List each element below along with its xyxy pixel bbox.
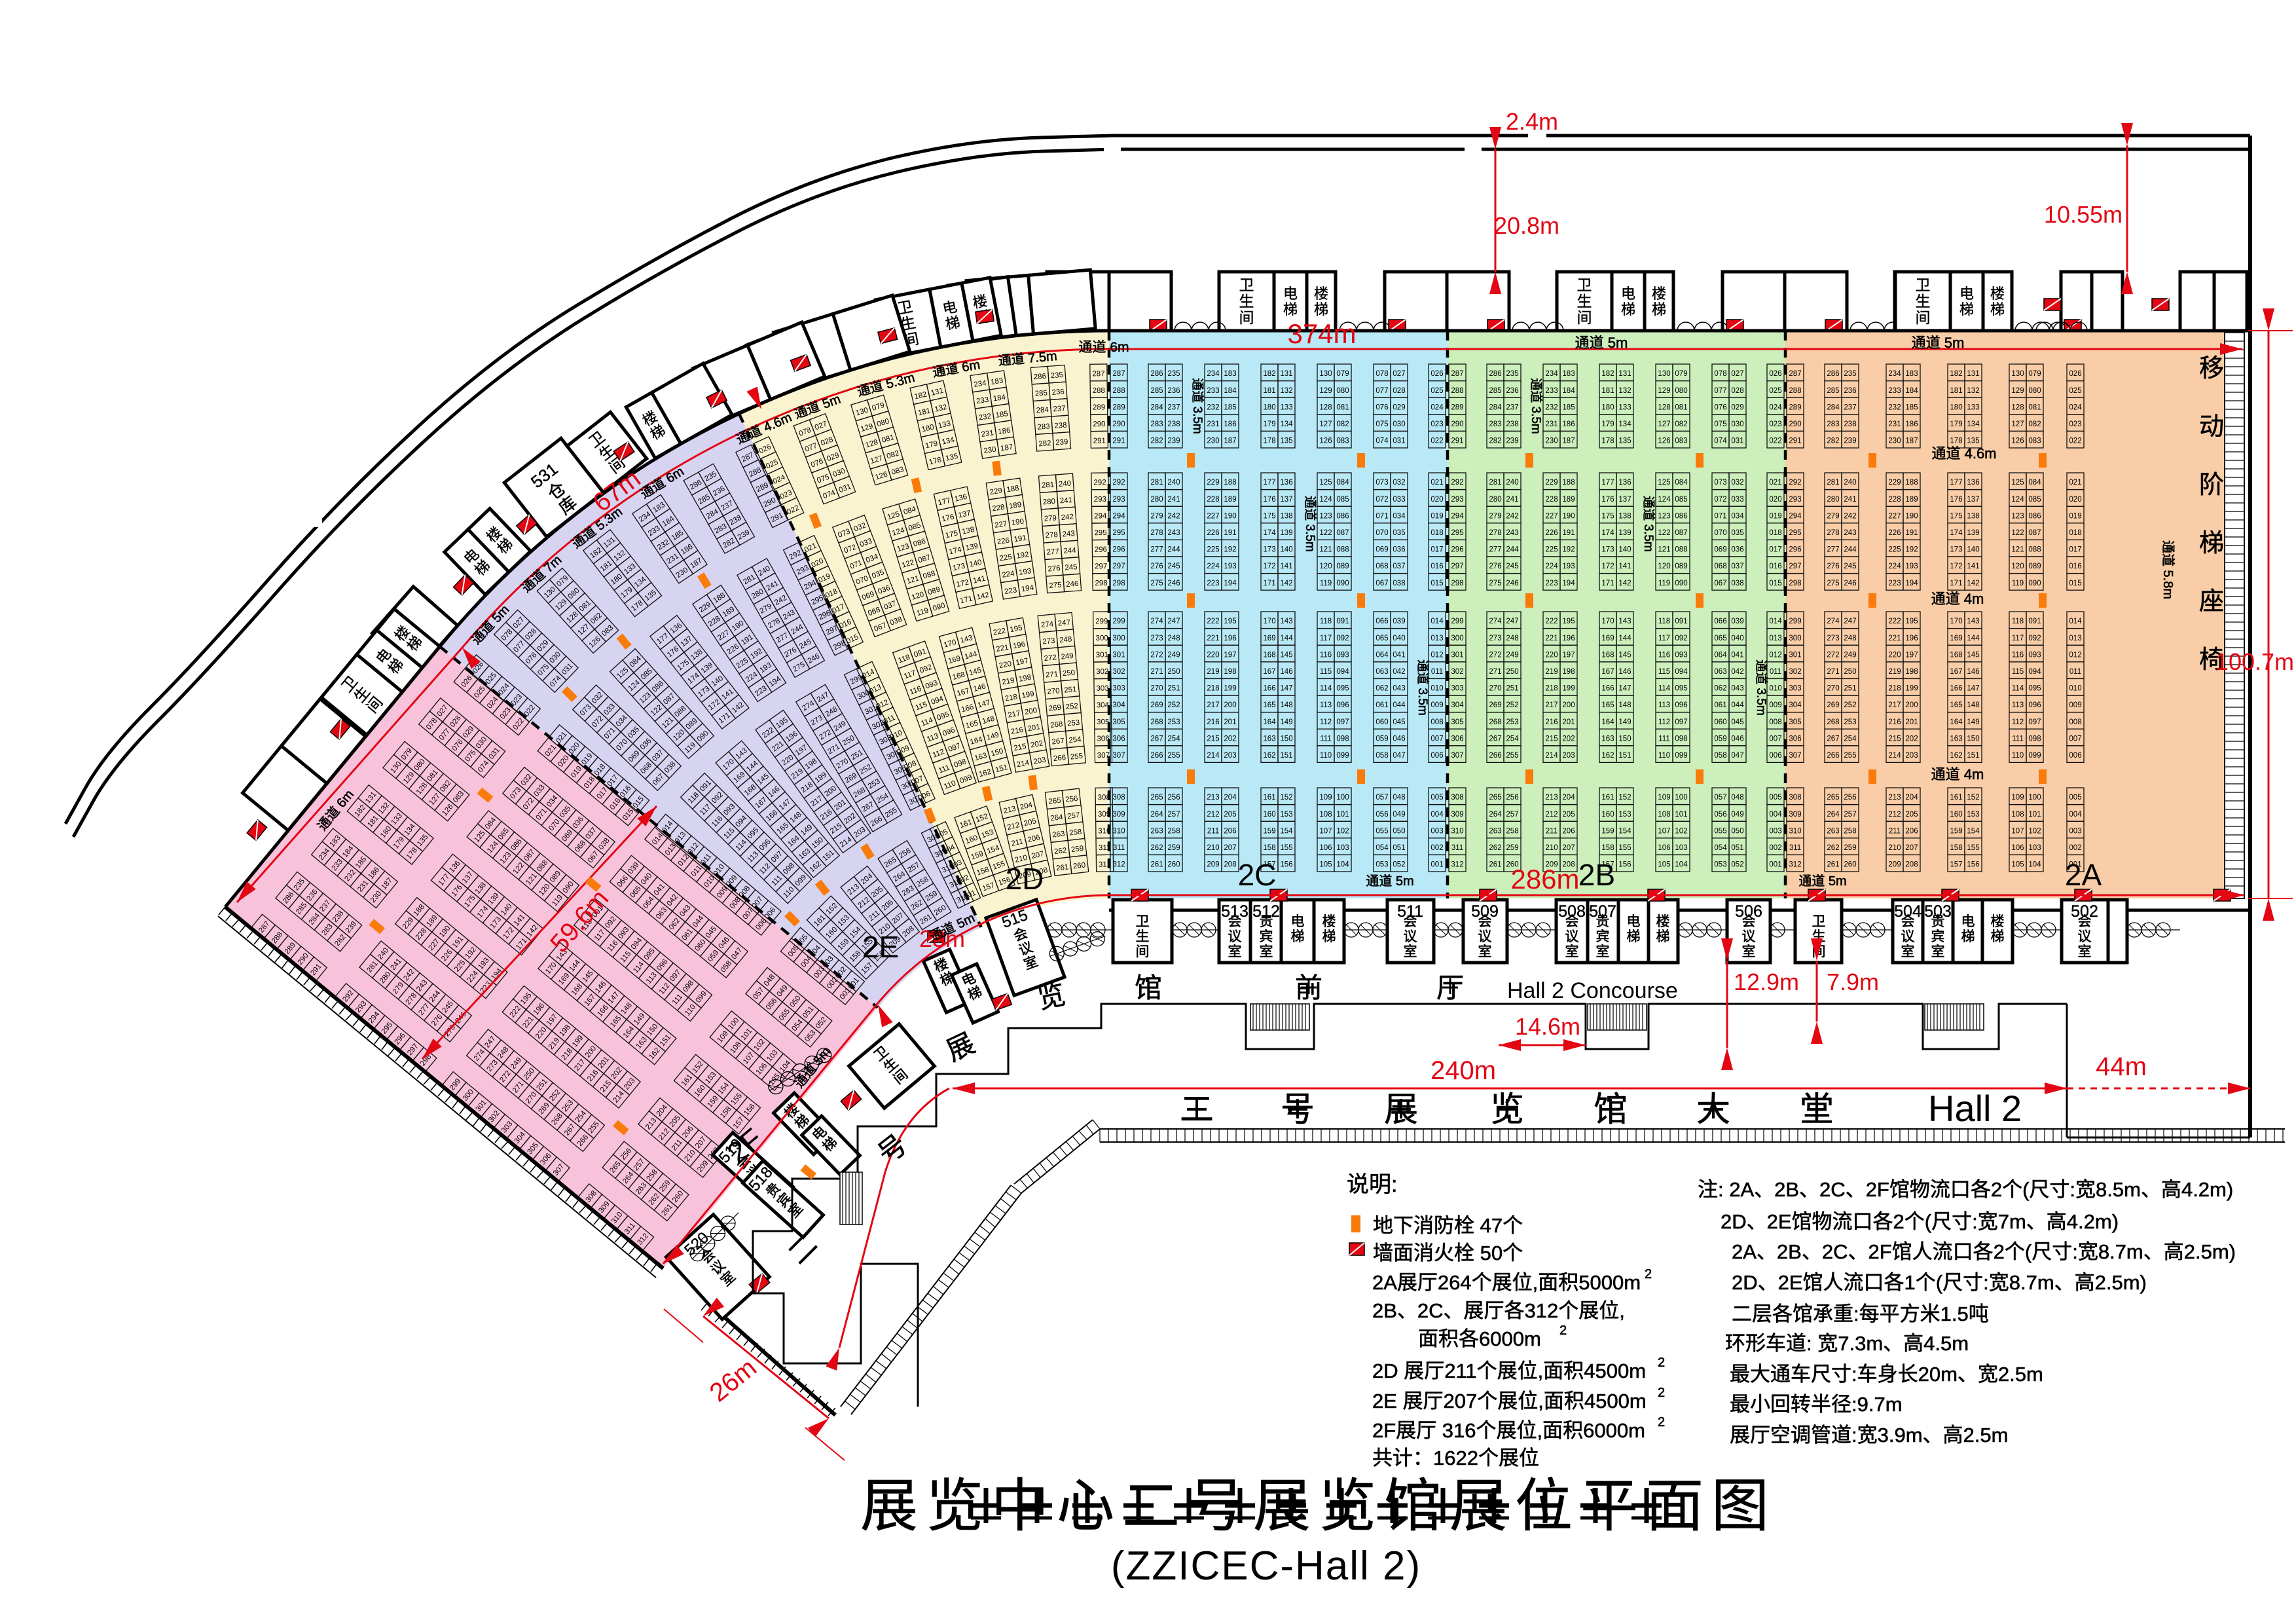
svg-text:座: 座 [2199,588,2224,616]
svg-text:221: 221 [1545,635,1558,642]
svg-text:通道 4m: 通道 4m [1931,766,1984,783]
svg-text:通道 4.6m: 通道 4.6m [1931,445,1996,462]
svg-text:182: 182 [1263,370,1275,378]
svg-text:018: 018 [1769,529,1781,537]
svg-text:105: 105 [2011,861,2024,869]
svg-text:118: 118 [1320,618,1332,625]
svg-text:002: 002 [2069,844,2081,852]
svg-text:183: 183 [1562,370,1575,378]
svg-text:082: 082 [1336,420,1349,428]
svg-text:196: 196 [1905,635,1918,642]
svg-text:286m: 286m [1510,864,1579,895]
svg-text:135: 135 [1618,437,1631,445]
svg-text:205: 205 [1224,811,1236,819]
svg-text:222: 222 [1888,618,1901,625]
svg-text:贵: 贵 [1260,914,1273,929]
svg-text:257: 257 [1506,811,1518,819]
svg-text:114: 114 [1658,685,1671,693]
svg-text:113: 113 [2012,701,2024,709]
svg-text:议: 议 [1228,929,1242,944]
svg-text:255: 255 [1070,752,1083,762]
svg-text:(ZZICEC-Hall 2): (ZZICEC-Hall 2) [1111,1543,1421,1589]
svg-text:125: 125 [2011,479,2024,487]
svg-text:254: 254 [1167,735,1180,743]
svg-text:142: 142 [1280,580,1292,587]
svg-text:电: 电 [1959,286,1974,302]
svg-text:058: 058 [1376,752,1388,760]
svg-text:100: 100 [1675,794,1687,802]
svg-text:247: 247 [1057,619,1070,628]
svg-text:138: 138 [1967,512,1979,520]
svg-text:238: 238 [1167,420,1180,428]
svg-text:140: 140 [1280,546,1292,554]
svg-text:207: 207 [1562,844,1575,852]
svg-text:119: 119 [1658,580,1670,587]
svg-text:272: 272 [1489,651,1501,659]
svg-text:089: 089 [2028,563,2041,570]
svg-text:141: 141 [1618,563,1631,570]
svg-text:097: 097 [1336,718,1349,726]
svg-text:150: 150 [1618,735,1631,743]
svg-text:130: 130 [1658,370,1670,378]
svg-text:2D 展厅211个展位,面积4500m: 2D 展厅211个展位,面积4500m [1372,1359,1646,1382]
svg-text:024: 024 [1769,403,1782,411]
svg-text:037: 037 [1731,563,1743,570]
svg-text:001: 001 [1430,861,1443,869]
svg-text:移: 移 [2199,355,2224,382]
svg-text:151: 151 [1280,752,1292,760]
svg-text:274: 274 [1150,618,1163,625]
svg-text:023: 023 [1769,420,1781,428]
svg-text:014: 014 [2069,618,2082,625]
svg-text:290: 290 [1093,420,1105,428]
svg-text:194: 194 [1905,580,1918,587]
svg-text:163: 163 [1950,735,1962,743]
svg-text:166: 166 [1263,685,1275,693]
svg-text:191: 191 [1562,529,1575,537]
svg-text:088: 088 [1675,546,1687,554]
svg-text:211: 211 [1889,827,1901,835]
svg-text:228: 228 [1888,496,1901,504]
svg-text:244: 244 [1167,546,1180,554]
svg-text:20.8m: 20.8m [1494,212,1559,239]
svg-text:167: 167 [1263,668,1275,676]
svg-text:126: 126 [1658,437,1670,445]
svg-text:308: 308 [1789,794,1801,802]
svg-text:198: 198 [1562,668,1575,676]
svg-text:066: 066 [1376,618,1388,625]
svg-text:145: 145 [1967,651,1979,659]
svg-text:248: 248 [1059,635,1072,644]
svg-text:257: 257 [1167,811,1180,819]
svg-text:309: 309 [1789,811,1801,819]
svg-text:255: 255 [1167,752,1180,760]
svg-text:233: 233 [1888,387,1901,395]
svg-text:286: 286 [1489,370,1501,378]
svg-text:229: 229 [1888,479,1901,487]
svg-text:090: 090 [2028,580,2041,587]
svg-text:194: 194 [1224,580,1237,587]
svg-text:107: 107 [1658,827,1670,835]
svg-text:033: 033 [1393,496,1405,504]
svg-text:205: 205 [1905,811,1918,819]
svg-text:249: 249 [1844,651,1856,659]
svg-text:094: 094 [1336,668,1349,676]
svg-text:235: 235 [1167,370,1180,378]
svg-text:270: 270 [1150,685,1163,693]
svg-text:100: 100 [2028,794,2041,802]
svg-text:225: 225 [1888,546,1901,554]
svg-text:261: 261 [1056,863,1069,872]
svg-text:144: 144 [1618,635,1631,642]
svg-text:170: 170 [1263,618,1275,625]
svg-text:112: 112 [2012,718,2024,726]
svg-text:14.6m: 14.6m [1515,1013,1580,1040]
svg-text:271: 271 [1489,668,1501,676]
svg-text:131: 131 [1967,370,1979,378]
svg-text:290: 290 [1789,420,1801,428]
svg-text:127: 127 [1319,420,1332,428]
svg-text:210: 210 [1207,844,1219,852]
svg-text:贵: 贵 [1931,914,1945,929]
svg-text:135: 135 [1280,437,1292,445]
svg-text:077: 077 [1376,387,1388,395]
svg-text:164: 164 [1950,718,1963,726]
svg-text:100.7m: 100.7m [2215,648,2294,675]
svg-text:290: 290 [1451,420,1463,428]
svg-text:129: 129 [2011,387,2024,395]
svg-text:204: 204 [1224,794,1237,802]
svg-text:071: 071 [1376,512,1388,520]
svg-text:188: 188 [1562,479,1575,487]
svg-text:185: 185 [1905,403,1918,411]
svg-text:301: 301 [1451,651,1463,659]
svg-text:179: 179 [1263,420,1275,428]
svg-text:180: 180 [1950,403,1962,411]
svg-text:289: 289 [1789,403,1801,411]
svg-text:201: 201 [1224,718,1236,726]
svg-text:230: 230 [1545,437,1558,445]
svg-text:梯: 梯 [1656,929,1670,944]
svg-text:091: 091 [2028,618,2041,625]
svg-text:204: 204 [1905,794,1918,802]
svg-text:129: 129 [1319,387,1332,395]
svg-text:206: 206 [1562,827,1575,835]
svg-text:273: 273 [1827,635,1839,642]
svg-text:031: 031 [1393,437,1405,445]
svg-text:294: 294 [1094,512,1107,520]
svg-text:047: 047 [1731,752,1743,760]
svg-text:133: 133 [1967,403,1979,411]
svg-text:302: 302 [1096,668,1108,676]
svg-text:230: 230 [1207,437,1219,445]
svg-text:085: 085 [1675,496,1687,504]
svg-text:10.55m: 10.55m [2044,201,2123,228]
svg-text:051: 051 [1731,844,1743,852]
svg-text:255: 255 [1506,752,1518,760]
svg-text:169: 169 [1601,635,1614,642]
svg-text:253: 253 [1067,719,1080,728]
svg-text:108: 108 [1319,811,1332,819]
svg-text:110: 110 [2012,752,2024,760]
svg-text:229: 229 [1207,479,1219,487]
svg-text:229: 229 [1545,479,1558,487]
svg-text:105: 105 [1658,861,1670,869]
svg-text:275: 275 [1049,581,1062,590]
svg-text:011: 011 [2069,668,2081,676]
svg-text:184: 184 [1224,387,1237,395]
svg-text:270: 270 [1489,685,1501,693]
svg-text:040: 040 [1731,635,1743,642]
svg-text:194: 194 [1562,580,1575,587]
svg-text:2A展厅264个展位,面积5000m: 2A展厅264个展位,面积5000m [1372,1271,1641,1294]
svg-text:312: 312 [1789,861,1801,869]
svg-text:013: 013 [2069,635,2081,642]
svg-text:150: 150 [1967,735,1979,743]
svg-text:099: 099 [1336,752,1349,760]
svg-text:133: 133 [1280,403,1292,411]
svg-text:053: 053 [1376,861,1388,869]
svg-text:241: 241 [1506,496,1518,504]
svg-text:167: 167 [1601,668,1614,676]
svg-text:252: 252 [1844,701,1856,709]
svg-text:123: 123 [1319,512,1332,520]
svg-text:115: 115 [1320,668,1332,676]
svg-text:298: 298 [1789,580,1801,587]
svg-text:269: 269 [1827,701,1839,709]
svg-text:067: 067 [1714,580,1726,587]
svg-text:124: 124 [1658,496,1671,504]
svg-text:027: 027 [1731,370,1743,378]
svg-text:020: 020 [1769,496,1781,504]
svg-text:宾: 宾 [1260,929,1273,944]
svg-text:017: 017 [1430,546,1443,554]
svg-text:237: 237 [1506,403,1518,411]
svg-text:092: 092 [1675,635,1687,642]
svg-text:178: 178 [1950,437,1962,445]
svg-text:202: 202 [1562,735,1575,743]
svg-text:277: 277 [1489,546,1501,554]
svg-text:305: 305 [1112,718,1125,726]
svg-text:213: 213 [1888,794,1901,802]
svg-text:083: 083 [2028,437,2041,445]
svg-text:237: 237 [1167,403,1180,411]
svg-text:062: 062 [1714,685,1726,693]
svg-text:172: 172 [1950,563,1962,570]
svg-text:213: 213 [1207,794,1219,802]
svg-text:247: 247 [1167,618,1180,625]
svg-text:180: 180 [1601,403,1614,411]
svg-text:145: 145 [1618,651,1631,659]
svg-text:063: 063 [1376,668,1388,676]
svg-text:208: 208 [1224,861,1236,869]
svg-text:250: 250 [1844,668,1856,676]
svg-text:136: 136 [1618,479,1631,487]
svg-text:192: 192 [1905,546,1918,554]
svg-text:187: 187 [1905,437,1918,445]
svg-text:202: 202 [1905,735,1918,743]
svg-text:287: 287 [1789,370,1801,378]
svg-text:108: 108 [1658,811,1670,819]
svg-text:244: 244 [1063,547,1077,555]
svg-text:182: 182 [1950,370,1962,378]
svg-text:227: 227 [1888,512,1901,520]
svg-text:287: 287 [1112,370,1125,378]
svg-text:074: 074 [1714,437,1727,445]
svg-text:115: 115 [1658,668,1670,676]
svg-text:034: 034 [1393,512,1406,520]
svg-text:298: 298 [1112,580,1125,587]
svg-text:282: 282 [1489,437,1501,445]
svg-text:137: 137 [1967,496,1979,504]
svg-text:152: 152 [1967,794,1979,802]
svg-text:069: 069 [1714,546,1726,554]
svg-text:214: 214 [1207,752,1220,760]
svg-text:118: 118 [1658,618,1670,625]
svg-text:063: 063 [1714,668,1726,676]
svg-text:243: 243 [1844,529,1856,537]
svg-text:220: 220 [1207,651,1219,659]
svg-text:259: 259 [1167,844,1180,852]
svg-text:264: 264 [1050,813,1064,822]
svg-text:084: 084 [2028,479,2041,487]
svg-text:168: 168 [1263,651,1275,659]
svg-text:梯: 梯 [1291,929,1305,944]
svg-text:097: 097 [2028,718,2041,726]
svg-text:161: 161 [1601,794,1614,802]
svg-text:138: 138 [1618,512,1631,520]
svg-text:162: 162 [1601,752,1614,760]
svg-text:139: 139 [1280,529,1292,537]
svg-text:311: 311 [1789,844,1801,852]
svg-text:080: 080 [1675,387,1687,395]
svg-text:楼: 楼 [1314,286,1328,302]
svg-text:284: 284 [1150,403,1163,411]
svg-text:096: 096 [1336,701,1349,709]
svg-text:090: 090 [1336,580,1349,587]
svg-text:117: 117 [1320,635,1332,642]
svg-text:205: 205 [1562,811,1575,819]
svg-text:048: 048 [1393,794,1405,802]
svg-text:158: 158 [1950,844,1962,852]
svg-text:154: 154 [1967,827,1980,835]
svg-text:间: 间 [1916,309,1931,326]
svg-text:083: 083 [1675,437,1687,445]
svg-text:207: 207 [1905,844,1918,852]
svg-text:295: 295 [1789,529,1801,537]
svg-text:042: 042 [1393,668,1405,676]
svg-text:057: 057 [1714,794,1726,802]
svg-text:018: 018 [2069,529,2081,537]
svg-text:020: 020 [2069,496,2081,504]
svg-text:117: 117 [2012,635,2024,642]
svg-text:187: 187 [1224,437,1236,445]
svg-text:最小回转半径:9.7m: 最小回转半径:9.7m [1730,1393,1903,1416]
svg-text:022: 022 [1769,437,1781,445]
svg-text:059: 059 [1714,735,1726,743]
svg-text:311: 311 [1113,844,1125,852]
svg-text:054: 054 [1376,844,1389,852]
svg-text:221: 221 [1207,635,1219,642]
svg-text:086: 086 [1336,512,1349,520]
svg-text:268: 268 [1489,718,1501,726]
svg-text:200: 200 [1905,701,1918,709]
svg-text:136: 136 [1967,479,1979,487]
svg-text:004: 004 [2069,811,2082,819]
svg-text:021: 021 [2069,479,2081,487]
svg-text:021: 021 [1769,479,1781,487]
svg-text:056: 056 [1376,811,1388,819]
svg-text:107: 107 [1319,827,1332,835]
svg-text:292: 292 [1451,479,1463,487]
svg-text:227: 227 [1207,512,1219,520]
svg-text:005: 005 [2069,794,2081,802]
svg-text:304: 304 [1097,701,1110,709]
svg-text:257: 257 [1844,811,1856,819]
svg-text:283: 283 [1037,422,1050,431]
svg-text:048: 048 [1731,794,1743,802]
svg-text:132: 132 [1967,387,1979,395]
svg-text:035: 035 [1731,529,1743,537]
svg-text:279: 279 [1489,512,1501,520]
svg-text:302: 302 [1112,668,1125,676]
svg-text:282: 282 [1150,437,1163,445]
svg-text:009: 009 [1769,701,1781,709]
svg-text:248: 248 [1506,635,1518,642]
svg-text:141: 141 [1967,563,1979,570]
svg-text:006: 006 [1769,752,1781,760]
svg-text:035: 035 [1393,529,1405,537]
svg-text:028: 028 [1731,387,1743,395]
svg-text:184: 184 [1905,387,1918,395]
svg-text:181: 181 [1950,387,1962,395]
svg-text:243: 243 [1062,530,1075,538]
svg-text:242: 242 [1844,512,1856,520]
svg-text:216: 216 [1207,718,1219,726]
svg-text:056: 056 [1714,811,1726,819]
svg-text:225: 225 [1207,546,1219,554]
svg-text:302: 302 [1451,668,1463,676]
svg-text:029: 029 [1731,403,1743,411]
svg-text:280: 280 [1489,496,1501,504]
svg-text:215: 215 [1545,735,1558,743]
svg-text:257: 257 [1067,811,1080,821]
svg-text:004: 004 [1430,811,1444,819]
svg-text:生: 生 [1916,293,1931,310]
svg-text:093: 093 [1675,651,1687,659]
svg-text:128: 128 [2011,403,2024,411]
svg-text:2E: 2E [862,930,899,964]
svg-text:通道 5m: 通道 5m [1575,335,1628,351]
svg-text:200: 200 [1562,701,1575,709]
svg-text:199: 199 [1905,685,1918,693]
svg-text:梯: 梯 [1961,929,1975,944]
svg-text:015: 015 [2069,580,2081,587]
svg-text:221: 221 [1888,635,1901,642]
svg-text:256: 256 [1844,794,1856,802]
svg-text:158: 158 [1263,844,1275,852]
svg-text:251: 251 [1844,685,1856,693]
svg-text:234: 234 [1545,370,1558,378]
svg-text:102: 102 [1675,827,1687,835]
svg-text:310: 310 [1112,827,1125,835]
svg-text:289: 289 [1093,403,1105,411]
svg-text:181: 181 [1263,387,1275,395]
svg-text:议: 议 [1565,929,1579,944]
svg-text:133: 133 [1618,403,1631,411]
svg-text:151: 151 [1618,752,1631,760]
svg-text:2B: 2B [1578,858,1615,892]
